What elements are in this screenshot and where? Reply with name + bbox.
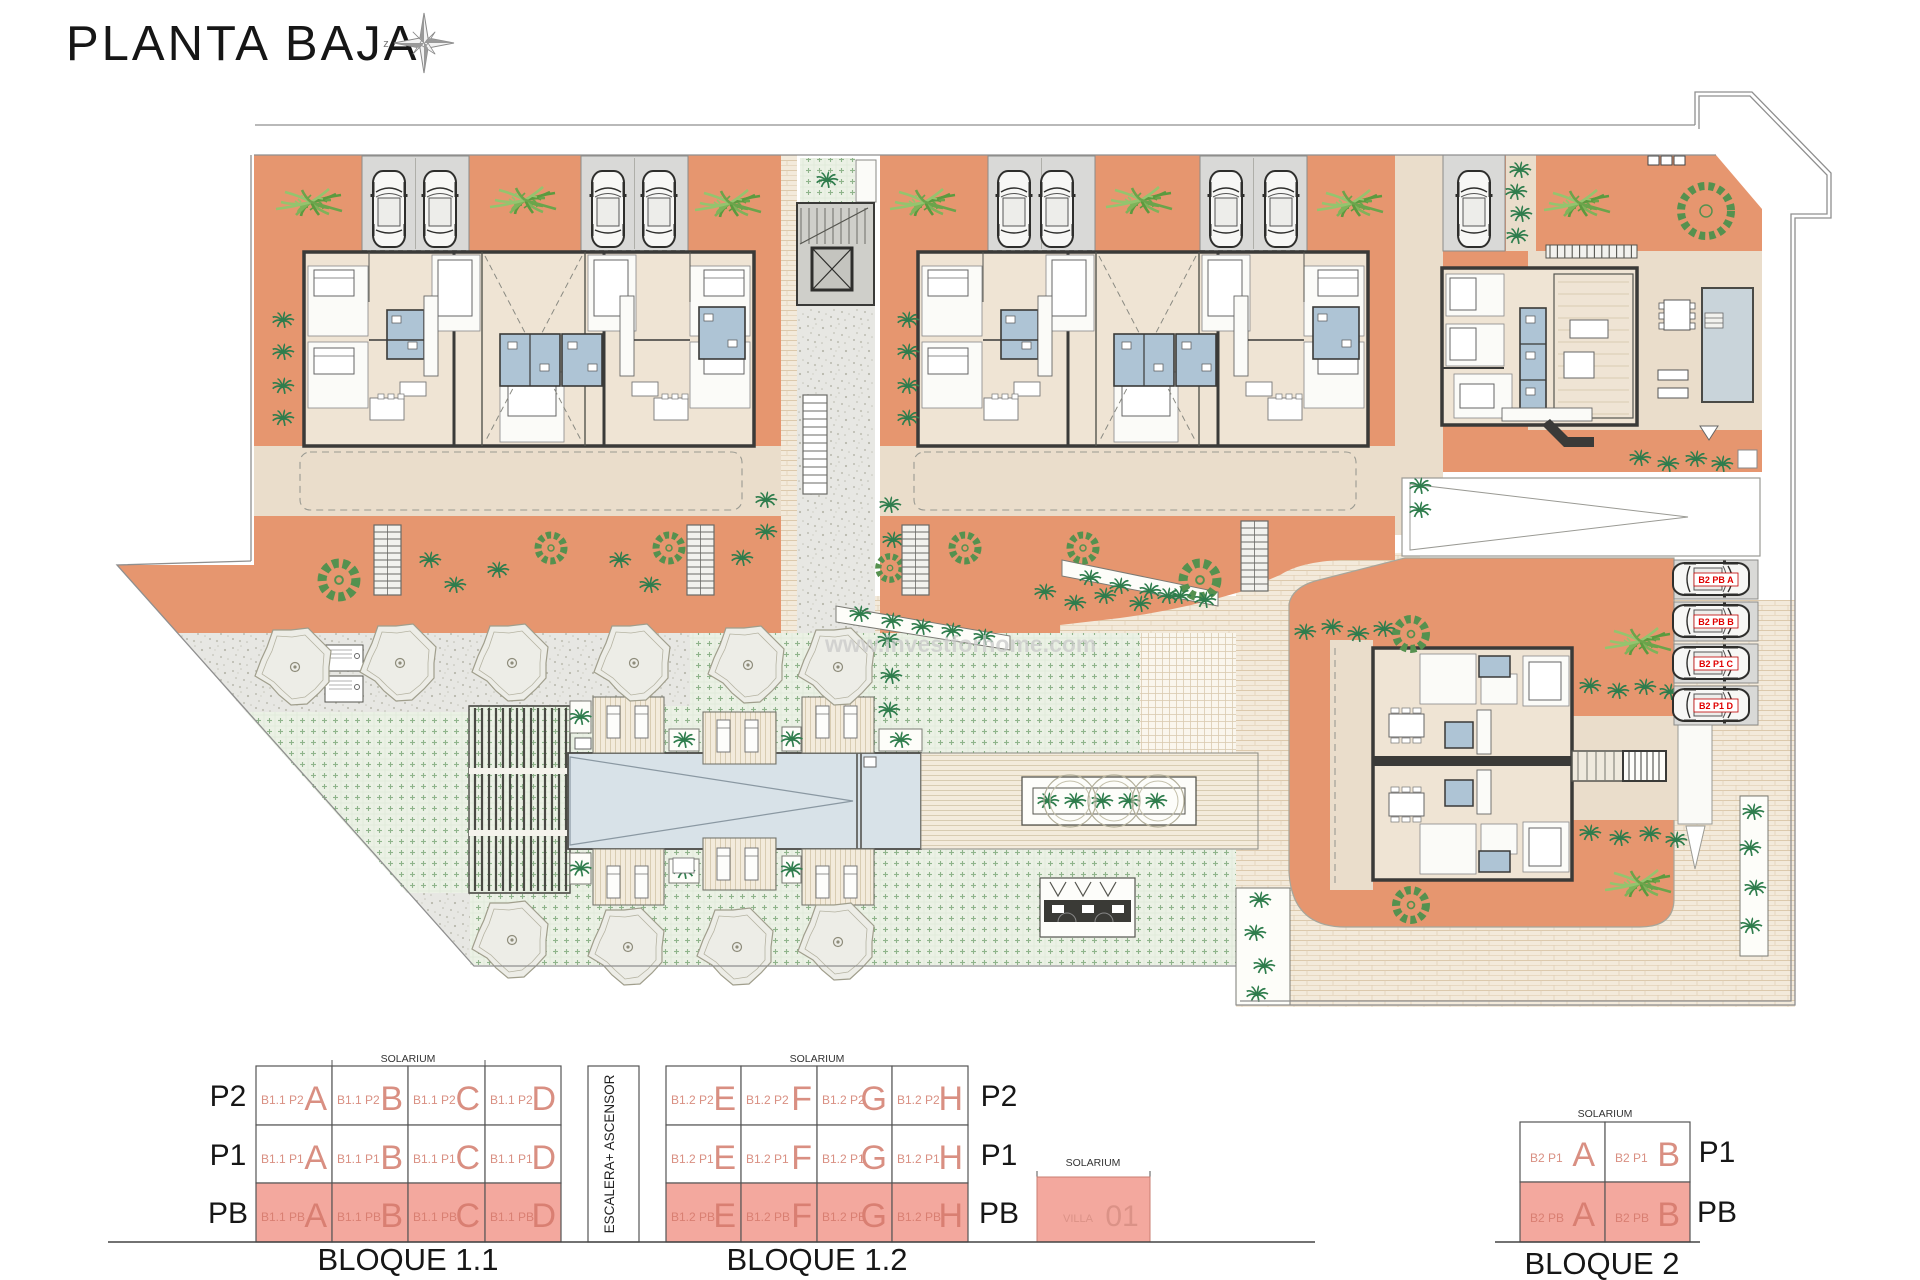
svg-text:B1.1 P1: B1.1 P1: [261, 1152, 304, 1166]
svg-text:C: C: [455, 1197, 480, 1235]
svg-text:P2: P2: [210, 1080, 247, 1113]
svg-text:B2 PB B: B2 PB B: [1698, 617, 1734, 627]
svg-text:B1.2 P2: B1.2 P2: [822, 1093, 865, 1107]
svg-text:E: E: [713, 1080, 736, 1118]
svg-text:VILLA: VILLA: [1063, 1213, 1094, 1225]
svg-text:P1: P1: [1699, 1136, 1736, 1169]
svg-text:01: 01: [1105, 1200, 1138, 1233]
svg-text:SOLARIUM: SOLARIUM: [1578, 1108, 1633, 1120]
svg-text:B1.1 PB: B1.1 PB: [261, 1210, 305, 1224]
svg-text:B1.1 P2: B1.1 P2: [261, 1093, 304, 1107]
svg-text:PLANTA BAJA: PLANTA BAJA: [66, 17, 419, 71]
svg-text:B1.2 PB: B1.2 PB: [746, 1210, 790, 1224]
svg-text:BLOQUE 1.2: BLOQUE 1.2: [727, 1242, 908, 1277]
svg-text:B1.1 PB: B1.1 PB: [490, 1210, 534, 1224]
svg-text:B2 P1 C: B2 P1 C: [1699, 659, 1734, 669]
svg-text:P2: P2: [981, 1080, 1018, 1113]
svg-text:B1.1 P1: B1.1 P1: [337, 1152, 380, 1166]
svg-text:B1.2 P1: B1.2 P1: [897, 1152, 940, 1166]
svg-text:B: B: [1657, 1196, 1680, 1234]
svg-text:C: C: [455, 1080, 480, 1118]
svg-text:A: A: [1572, 1196, 1595, 1234]
svg-text:B1.2 P1: B1.2 P1: [822, 1152, 865, 1166]
svg-text:www.investforhome.com: www.investforhome.com: [824, 631, 1096, 657]
svg-text:B1.2 P2: B1.2 P2: [746, 1093, 789, 1107]
svg-text:G: G: [861, 1080, 887, 1118]
svg-text:B1.1 PB: B1.1 PB: [337, 1210, 381, 1224]
svg-text:B1.1 P1: B1.1 P1: [413, 1152, 456, 1166]
svg-text:SOLARIUM: SOLARIUM: [790, 1053, 845, 1065]
svg-text:B1.2 P2: B1.2 P2: [671, 1093, 714, 1107]
svg-text:F: F: [791, 1197, 812, 1235]
svg-text:P1: P1: [981, 1139, 1018, 1172]
svg-text:B1.2 PB: B1.2 PB: [822, 1210, 866, 1224]
svg-text:B: B: [380, 1080, 403, 1118]
svg-text:B2 PB: B2 PB: [1615, 1211, 1649, 1225]
svg-text:B1.1 PB: B1.1 PB: [413, 1210, 457, 1224]
svg-text:B1.2 P2: B1.2 P2: [897, 1093, 940, 1107]
svg-text:B1.2 P1: B1.2 P1: [746, 1152, 789, 1166]
svg-text:G: G: [861, 1197, 887, 1235]
svg-text:B: B: [380, 1139, 403, 1177]
svg-text:H: H: [938, 1139, 963, 1177]
svg-text:B1.2 PB: B1.2 PB: [897, 1210, 941, 1224]
svg-text:B: B: [1657, 1136, 1680, 1174]
svg-text:E: E: [713, 1139, 736, 1177]
svg-text:A: A: [304, 1080, 327, 1118]
svg-text:D: D: [531, 1080, 556, 1118]
svg-text:B1.2 PB: B1.2 PB: [671, 1210, 715, 1224]
svg-text:B1.1 P2: B1.1 P2: [413, 1093, 456, 1107]
svg-text:PB: PB: [208, 1197, 248, 1230]
svg-text:B2 PB: B2 PB: [1530, 1211, 1564, 1225]
svg-text:D: D: [531, 1139, 556, 1177]
svg-text:D: D: [531, 1197, 556, 1235]
svg-text:P1: P1: [210, 1139, 247, 1172]
svg-text:B2 P1: B2 P1: [1530, 1151, 1563, 1165]
svg-text:BLOQUE 2: BLOQUE 2: [1524, 1246, 1679, 1280]
svg-text:z: z: [383, 38, 389, 50]
svg-text:BLOQUE 1.1: BLOQUE 1.1: [318, 1242, 499, 1277]
svg-text:B2 PB A: B2 PB A: [1698, 575, 1734, 585]
svg-text:SOLARIUM: SOLARIUM: [1066, 1157, 1121, 1169]
svg-text:A: A: [304, 1197, 327, 1235]
svg-text:C: C: [455, 1139, 480, 1177]
svg-text:B1.1 P1: B1.1 P1: [490, 1152, 533, 1166]
svg-text:E: E: [713, 1197, 736, 1235]
svg-text:PB: PB: [1697, 1196, 1737, 1229]
svg-text:F: F: [791, 1080, 812, 1118]
svg-text:B2 P1: B2 P1: [1615, 1151, 1648, 1165]
svg-text:F: F: [791, 1139, 812, 1177]
svg-text:SOLARIUM: SOLARIUM: [381, 1053, 436, 1065]
svg-text:ESCALERA+ ASCENSOR: ESCALERA+ ASCENSOR: [602, 1074, 617, 1233]
svg-text:A: A: [1572, 1136, 1595, 1174]
svg-text:H: H: [938, 1080, 963, 1118]
svg-text:B2 P1 D: B2 P1 D: [1699, 701, 1734, 711]
svg-text:B1.1 P2: B1.1 P2: [337, 1093, 380, 1107]
svg-text:A: A: [304, 1139, 327, 1177]
svg-text:PB: PB: [979, 1197, 1019, 1230]
svg-text:H: H: [938, 1197, 963, 1235]
svg-text:B1.1 P2: B1.1 P2: [490, 1093, 533, 1107]
svg-text:B: B: [380, 1197, 403, 1235]
svg-text:G: G: [861, 1139, 887, 1177]
svg-text:B1.2 P1: B1.2 P1: [671, 1152, 714, 1166]
